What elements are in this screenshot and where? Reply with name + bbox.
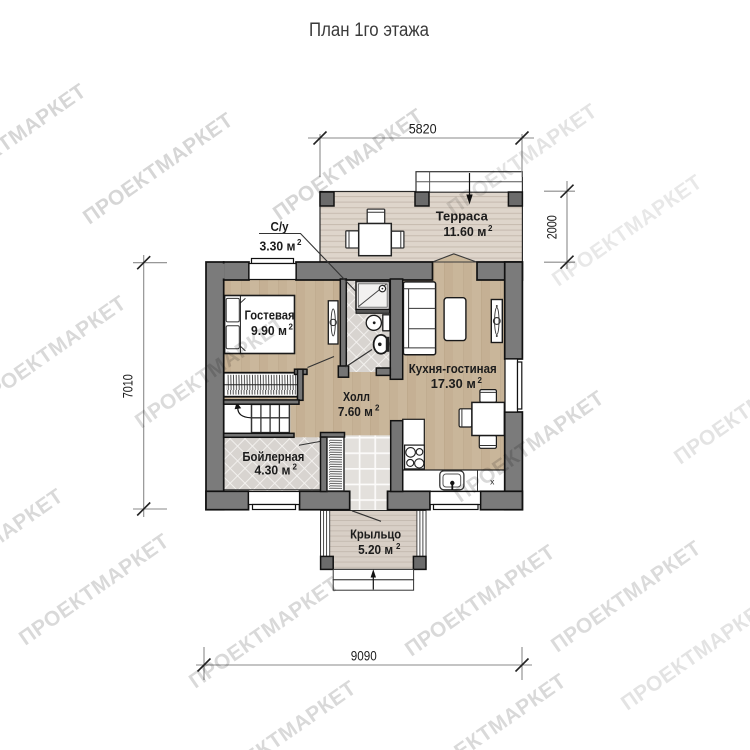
svg-text:ПРОЕКТМАРКЕТ: ПРОЕКТМАРКЕТ [548,170,707,291]
svg-text:5.20 м: 5.20 м [358,543,393,557]
svg-text:2: 2 [488,224,493,233]
svg-text:ПРОЕКТМАРКЕТ: ПРОЕКТМАРКЕТ [0,484,68,605]
svg-text:ПРОЕКТМАРКЕТ: ПРОЕКТМАРКЕТ [79,108,238,229]
svg-text:ПРОЕКТМАРКЕТ: ПРОЕКТМАРКЕТ [185,572,344,693]
svg-text:ПРОЕКТМАРКЕТ: ПРОЕКТМАРКЕТ [617,594,750,715]
svg-text:7010: 7010 [120,374,135,398]
svg-text:Холл: Холл [343,390,370,404]
svg-text:2: 2 [396,542,401,551]
svg-text:ПРОЕКТМАРКЕТ: ПРОЕКТМАРКЕТ [547,536,706,657]
svg-text:3.30 м: 3.30 м [260,239,296,253]
svg-text:2: 2 [375,404,380,413]
svg-text:4.30 м: 4.30 м [255,464,291,478]
svg-text:План 1го этажа: План 1го этажа [309,20,429,41]
svg-text:ПРОЕКТМАРКЕТ: ПРОЕКТМАРКЕТ [0,79,91,200]
svg-text:ПРОЕКТМАРКЕТ: ПРОЕКТМАРКЕТ [202,676,361,750]
svg-text:2: 2 [293,462,298,471]
svg-text:11.60 м: 11.60 м [443,225,486,239]
svg-text:2000: 2000 [545,215,560,239]
svg-text:17.30 м: 17.30 м [431,377,476,391]
svg-text:Кухня-гостиная: Кухня-гостиная [409,362,497,376]
svg-text:2: 2 [297,238,302,247]
svg-text:2: 2 [478,376,483,385]
svg-text:2: 2 [289,323,294,332]
svg-text:9090: 9090 [351,648,377,663]
svg-text:7.60 м: 7.60 м [338,405,373,419]
svg-text:ПРОЕКТМАРКЕТ: ПРОЕКТМАРКЕТ [15,529,174,650]
svg-text:Крыльцо: Крыльцо [350,527,401,541]
svg-text:ПРОЕКТМАРКЕТ: ПРОЕКТМАРКЕТ [670,348,750,469]
svg-text:ПРОЕКТМАРКЕТ: ПРОЕКТМАРКЕТ [0,291,131,412]
svg-text:ПРОЕКТМАРКЕТ: ПРОЕКТМАРКЕТ [412,669,571,750]
